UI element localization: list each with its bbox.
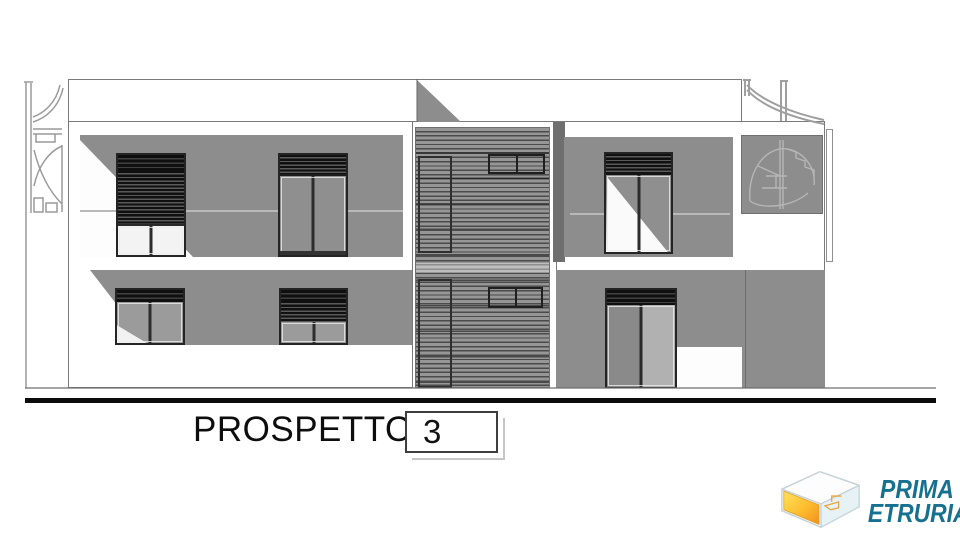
parapet-shadow-triangle bbox=[417, 80, 461, 122]
left-stair-section-icon bbox=[24, 82, 63, 388]
drawing-title: PROSPETTO bbox=[193, 412, 413, 448]
ground-section-line bbox=[25, 398, 936, 403]
title-number-box: 3 bbox=[405, 411, 498, 453]
logo-line-2: ETRURIA bbox=[868, 501, 960, 525]
elevation-drawing-page: PROSPETTO 3 PRIMA ETRURIA bbox=[0, 0, 960, 540]
drawing-number: 3 bbox=[423, 413, 441, 450]
roof-railing-icon bbox=[743, 80, 824, 124]
prima-etruria-logo-icon bbox=[776, 464, 864, 534]
logo-wordmark: PRIMA ETRURIA bbox=[854, 477, 954, 525]
